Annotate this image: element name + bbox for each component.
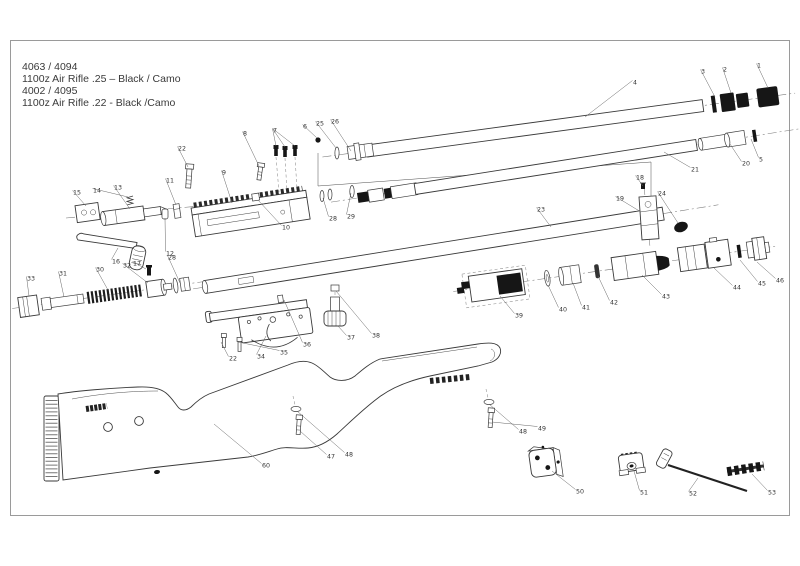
leader-line xyxy=(598,276,610,301)
part-screw-washer xyxy=(291,406,301,411)
part-adjuster-nut xyxy=(331,285,339,291)
part-label: 51 xyxy=(640,490,648,497)
part-label: 19 xyxy=(616,196,624,203)
part-end-cap xyxy=(18,295,40,317)
part-rear-block xyxy=(75,203,100,223)
part-label: 25 xyxy=(316,121,324,128)
part-label: 46 xyxy=(776,278,784,285)
part-liner-pin xyxy=(752,130,757,142)
part-label: 6 xyxy=(303,124,307,131)
exploded-diagram: 1234520216252678229111514131216172810282… xyxy=(0,0,800,566)
leader-line xyxy=(714,268,733,286)
leader-line xyxy=(573,283,582,306)
part-label: 48 xyxy=(345,452,353,459)
part-label: 20 xyxy=(742,161,750,168)
leader-line xyxy=(489,404,519,430)
part-barrel-liner xyxy=(330,119,800,209)
part-rail-insert xyxy=(252,193,260,201)
part-bushing xyxy=(173,204,181,219)
part-label: 28 xyxy=(329,216,337,223)
leader-line xyxy=(323,198,329,217)
part-label: 22 xyxy=(178,146,186,153)
part-magazine xyxy=(639,196,659,240)
leader-line xyxy=(752,474,768,491)
leader-line xyxy=(634,471,640,491)
part-label: 39 xyxy=(515,313,523,320)
part-front-washer xyxy=(335,147,339,159)
part-label: 36 xyxy=(303,342,311,349)
part-label: 1 xyxy=(757,63,761,70)
part-label: 2 xyxy=(723,67,727,74)
leader-line xyxy=(552,471,576,490)
part-label: 52 xyxy=(689,491,697,498)
part-sear-pin xyxy=(278,295,284,303)
part-gauge-face xyxy=(496,272,522,294)
leader-line xyxy=(757,262,776,279)
part-label: 16 xyxy=(112,259,120,266)
part-front-bushing xyxy=(347,141,374,161)
part-valve-pin xyxy=(594,264,600,278)
hammer-spring-assembly xyxy=(11,270,216,318)
stock-vent-hole xyxy=(104,423,113,432)
leader-line xyxy=(740,260,758,282)
part-label: 53 xyxy=(768,490,776,497)
part-stock xyxy=(44,343,501,481)
leader-line xyxy=(664,152,691,168)
part-label: 21 xyxy=(691,167,699,174)
part-muzzle-washer xyxy=(711,95,717,112)
part-oring xyxy=(328,189,332,200)
part-label: 31 xyxy=(59,271,67,278)
part-label: 40 xyxy=(559,307,567,314)
part-adjuster-knob xyxy=(324,285,346,326)
part-label: 15 xyxy=(73,190,81,197)
part-screw-washer xyxy=(484,399,494,404)
part-label: 32 xyxy=(123,263,131,270)
part-label: 5 xyxy=(759,157,763,164)
part-label: 30 xyxy=(96,267,104,274)
part-label: 28 xyxy=(168,255,176,262)
part-lever-screw xyxy=(146,265,152,276)
part-label: 10 xyxy=(282,225,290,232)
part-label: 35 xyxy=(280,350,288,357)
part-bolt-knob xyxy=(673,220,690,234)
part-receiver-screw xyxy=(184,164,194,188)
part-label: 60 xyxy=(262,463,270,470)
leader-line xyxy=(689,478,699,492)
leader-line xyxy=(165,218,166,252)
part-label: 8 xyxy=(243,131,247,138)
part-label: 41 xyxy=(582,305,590,312)
leader-line xyxy=(238,342,280,351)
part-label: 4 xyxy=(633,80,637,87)
part-small-spring xyxy=(127,196,133,205)
part-label: 48 xyxy=(519,429,527,436)
part-label: 45 xyxy=(758,281,766,288)
part-fill-plug xyxy=(727,466,764,472)
part-barrel xyxy=(321,84,796,167)
leader-line xyxy=(492,422,538,427)
part-label: 22 xyxy=(229,356,237,363)
part-fill-collar xyxy=(677,244,707,272)
part-receiver xyxy=(190,186,310,237)
stock-vent-hole xyxy=(135,417,144,426)
part-rail-screws xyxy=(274,145,298,192)
part-muzzle-nut xyxy=(720,92,736,112)
part-label: 42 xyxy=(610,300,618,307)
part-label: 34 xyxy=(257,354,265,361)
part-label: 7 xyxy=(273,128,277,135)
part-valve-washer xyxy=(544,270,551,287)
part-label: 26 xyxy=(331,119,339,126)
part-muzzle-bushing xyxy=(736,92,750,107)
part-label: 9 xyxy=(222,170,226,177)
part-ball-detent xyxy=(315,137,320,142)
part-valve-body xyxy=(611,251,659,280)
part-label: 23 xyxy=(537,207,545,214)
leader-line xyxy=(548,285,559,308)
part-label: 44 xyxy=(733,285,741,292)
leader-line xyxy=(338,326,347,336)
part-label: 49 xyxy=(538,426,546,433)
part-sling-block xyxy=(528,443,563,480)
part-barrel-band xyxy=(617,452,646,475)
leader-line xyxy=(347,193,352,215)
part-label: 13 xyxy=(114,185,122,192)
part-label: 47 xyxy=(327,454,335,461)
part-label: 11 xyxy=(166,178,174,185)
leader-line xyxy=(642,275,662,295)
part-label: 14 xyxy=(93,188,101,195)
part-hammer xyxy=(100,203,169,226)
part-sling-stud xyxy=(154,470,160,475)
part-label: 43 xyxy=(662,294,670,301)
part-label: 17 xyxy=(133,261,141,268)
part-label: 33 xyxy=(27,276,35,283)
part-label: 38 xyxy=(372,333,380,340)
part-label: 24 xyxy=(658,191,666,198)
part-breech-screw xyxy=(255,163,264,181)
part-label: 50 xyxy=(576,489,584,496)
leader-line xyxy=(500,296,515,314)
part-label: 37 xyxy=(347,335,355,342)
part-spacer xyxy=(162,209,168,219)
part-label: 18 xyxy=(636,175,644,182)
part-label: 3 xyxy=(701,69,705,76)
part-muzzle-cap xyxy=(756,86,779,108)
part-label: 29 xyxy=(347,214,355,221)
part-forend-rail xyxy=(430,377,470,381)
diagram-page: 4063 / 4094 1100z Air Rifle .25 – Black … xyxy=(0,0,800,566)
leader-line xyxy=(730,144,742,162)
